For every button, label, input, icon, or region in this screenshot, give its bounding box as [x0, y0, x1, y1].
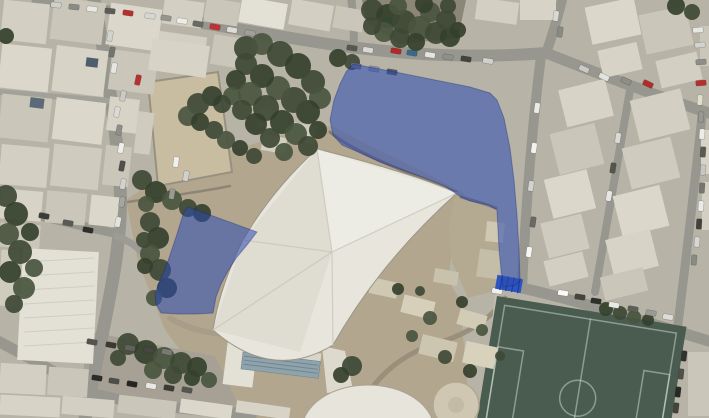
- aerial-imagery: [0, 0, 709, 418]
- map-canvas[interactable]: [0, 0, 709, 418]
